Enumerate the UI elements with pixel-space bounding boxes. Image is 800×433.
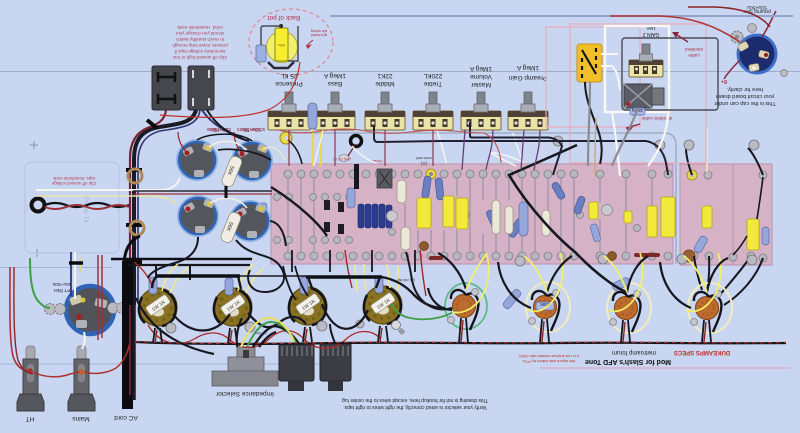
svg-text:to reach standby switch: to reach standby switch bbox=[176, 37, 224, 42]
svg-text:50u+50u: 50u+50u bbox=[52, 281, 71, 287]
svg-text:Volume: Volume bbox=[470, 73, 492, 80]
svg-text:Treble: Treble bbox=[424, 80, 443, 87]
svg-text:22K1: 22K1 bbox=[377, 72, 393, 79]
svg-text:should you change your: should you change your bbox=[175, 31, 224, 36]
svg-text:preamp filter: preamp filter bbox=[743, 8, 771, 14]
svg-text:here for clarity.: here for clarity. bbox=[727, 86, 763, 92]
svg-text:GAIN 2: GAIN 2 bbox=[643, 31, 660, 37]
svg-text:Bass: Bass bbox=[327, 80, 342, 87]
svg-text:taps, heatshrink ends: taps, heatshrink ends bbox=[52, 176, 95, 181]
svg-text:25 KL: 25 KL bbox=[280, 72, 297, 79]
svg-text:metroamp forum: metroamp forum bbox=[612, 349, 656, 355]
svg-text:Verify your selector is wired: Verify your selector is wired correctly,… bbox=[343, 404, 487, 410]
svg-text:This is the cap can under: This is the cap can under bbox=[714, 100, 776, 106]
svg-text:68u: 68u bbox=[278, 43, 285, 48]
svg-text:Back of pot: Back of pot bbox=[268, 14, 301, 21]
svg-text:secondary voltage taps if: secondary voltage taps if bbox=[174, 49, 226, 54]
svg-text:220KL: 220KL bbox=[423, 72, 442, 79]
svg-text:Master: Master bbox=[470, 81, 491, 88]
svg-text:Impedance Selector: Impedance Selector bbox=[215, 390, 274, 397]
svg-text:cable: cable bbox=[688, 52, 700, 58]
svg-text:OT Sec: OT Sec bbox=[255, 331, 267, 335]
svg-text:Mod for Slash's AFD Tone: Mod for Slash's AFD Tone bbox=[585, 358, 671, 365]
svg-text:next well: next well bbox=[416, 156, 432, 161]
svg-text:Middle: Middle bbox=[375, 80, 395, 87]
svg-text:HT: HT bbox=[26, 415, 35, 422]
svg-text:1MA: 1MA bbox=[646, 26, 655, 31]
svg-text:1Meg A: 1Meg A bbox=[516, 64, 539, 71]
svg-text:1Meg A: 1Meg A bbox=[469, 65, 492, 72]
svg-text:shielded: shielded bbox=[685, 46, 703, 52]
svg-text:(V): (V) bbox=[421, 161, 428, 166]
svg-text:Clip off unused high or low: Clip off unused high or low bbox=[172, 55, 227, 60]
svg-text:present, leave long enough: present, leave long enough bbox=[172, 43, 228, 48]
svg-text:(old) LP-10: (old) LP-10 bbox=[333, 157, 351, 161]
svg-text:screen filters: screen filters bbox=[236, 126, 265, 132]
svg-text:Power TX: Power TX bbox=[82, 197, 88, 223]
svg-text:AC cord: AC cord bbox=[114, 414, 138, 421]
svg-text:mind. Heatshrink ends: mind. Heatshrink ends bbox=[176, 25, 222, 30]
svg-text:it is not anyhow related with: it is not anyhow related with OEM bbox=[519, 354, 578, 359]
svg-text:Preamp Gain: Preamp Gain bbox=[508, 74, 547, 81]
svg-text:your circuit board drawn: your circuit board drawn bbox=[716, 93, 775, 99]
svg-text:This drawing is not for hookup: This drawing is not for hookup here, exc… bbox=[342, 397, 488, 403]
svg-text:a/b wiring: a/b wiring bbox=[311, 29, 327, 33]
svg-text:grounded: grounded bbox=[311, 33, 327, 37]
svg-text:PT filter: PT filter bbox=[53, 287, 70, 293]
svg-text:1Meg A: 1Meg A bbox=[323, 72, 346, 79]
svg-text:Presence: Presence bbox=[275, 80, 303, 87]
svg-text:Mains: Mains bbox=[72, 415, 90, 422]
svg-text:DUKEAMPS SPECS: DUKEAMPS SPECS bbox=[674, 349, 730, 355]
